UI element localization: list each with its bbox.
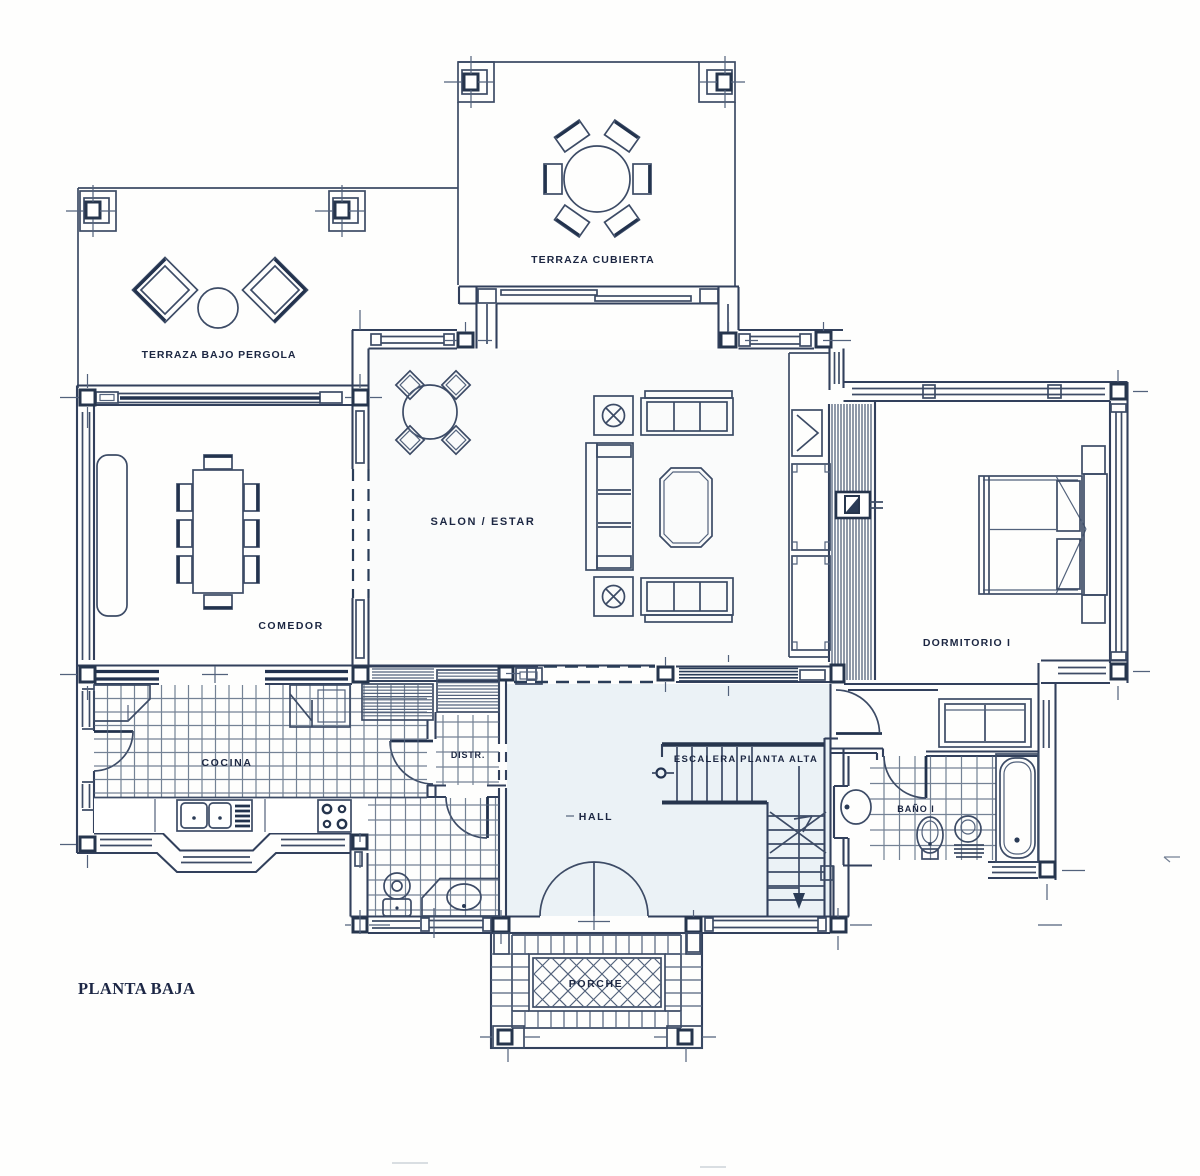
svg-text:HALL: HALL [579, 811, 613, 823]
svg-text:PLANTA BAJA: PLANTA BAJA [78, 979, 195, 998]
svg-text:TERRAZA BAJO PERGOLA: TERRAZA BAJO PERGOLA [142, 349, 297, 361]
svg-text:PORCHE: PORCHE [569, 978, 624, 990]
svg-text:DORMITORIO I: DORMITORIO I [923, 637, 1011, 649]
svg-text:BAÑO I: BAÑO I [897, 804, 935, 814]
svg-text:ESCALERA PLANTA ALTA: ESCALERA PLANTA ALTA [674, 754, 818, 765]
svg-text:DISTR.: DISTR. [451, 750, 485, 760]
svg-text:TERRAZA CUBIERTA: TERRAZA CUBIERTA [531, 254, 655, 266]
svg-text:COMEDOR: COMEDOR [258, 620, 323, 632]
svg-text:COCINA: COCINA [201, 757, 252, 769]
svg-text:SALON / ESTAR: SALON / ESTAR [431, 516, 536, 528]
